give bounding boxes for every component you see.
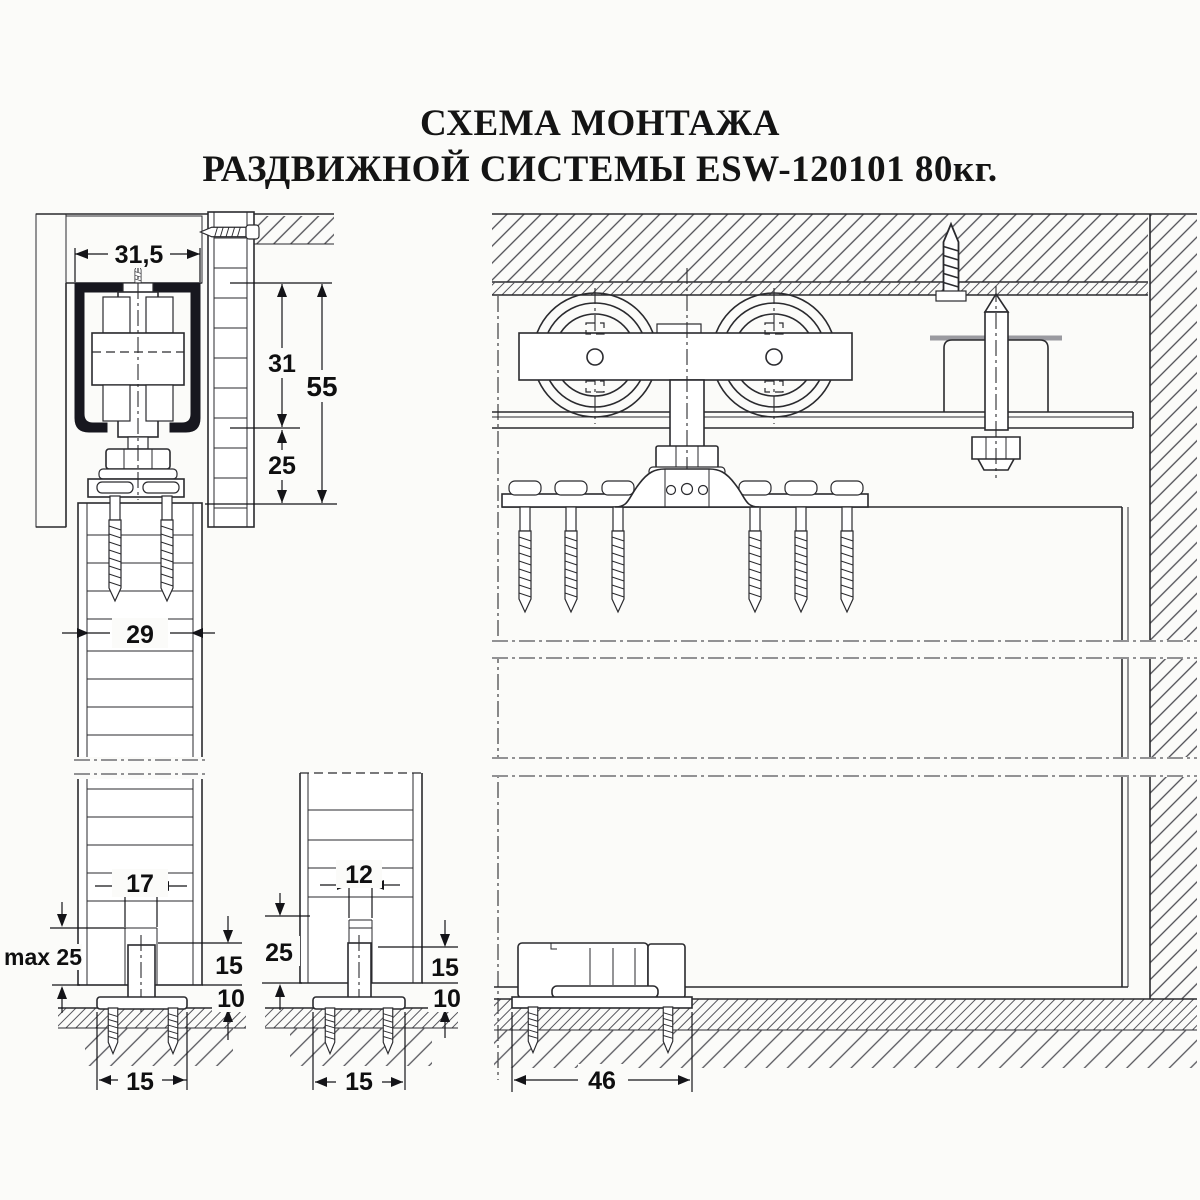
dim-base-height-chipboard: 10 [217, 985, 245, 1013]
track-rails [492, 412, 1133, 428]
right-wall-hatch [1150, 214, 1197, 999]
dim-base-width-chipboard: 15 [126, 1068, 154, 1096]
dim-overall-height: 55 [306, 371, 337, 402]
dim-max-engagement: max 25 [4, 944, 82, 970]
door-panel-section [74, 496, 206, 985]
dim-pin-height-frame: 15 [431, 954, 459, 982]
end-stop [930, 286, 1062, 478]
installation-diagram: 31,5 31 25 55 29 17 [0, 0, 1200, 1200]
dim-groove-frame: 12 [345, 861, 373, 889]
ceiling-hatch [492, 214, 1197, 295]
door-mounting-plate [502, 469, 1122, 612]
floor-and-guide: 46 [494, 943, 1197, 1095]
dim-floor-guide-length: 46 [588, 1067, 616, 1095]
dim-clearance: 25 [268, 452, 296, 480]
dim-pin-height-chipboard: 15 [215, 952, 243, 980]
front-elevation-view: 46 [492, 214, 1197, 1095]
frame-door-section-view: 12 25 15 10 15 [258, 773, 466, 1096]
fascia-panel [200, 212, 259, 527]
dim-track-width: 31,5 [115, 241, 164, 269]
dim-engagement-frame: 25 [265, 939, 293, 967]
dim-groove-chipboard: 17 [126, 870, 154, 898]
dim-base-height-frame: 10 [433, 985, 461, 1013]
dim-roller-height: 31 [268, 350, 296, 378]
roller-unit [88, 256, 184, 500]
dim-door-thickness: 29 [126, 621, 154, 649]
dim-base-width-frame: 15 [345, 1068, 373, 1096]
